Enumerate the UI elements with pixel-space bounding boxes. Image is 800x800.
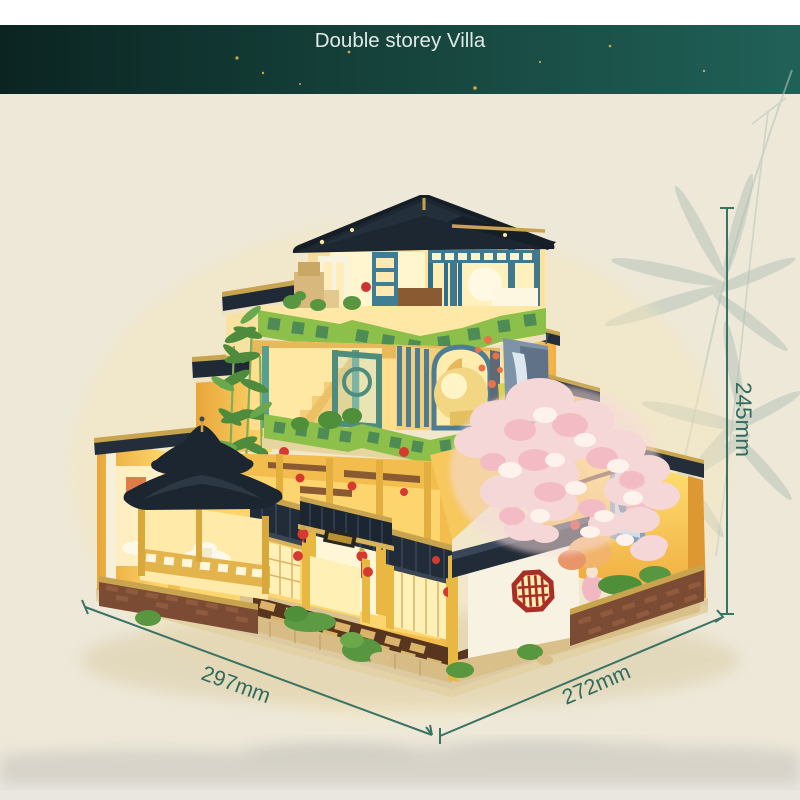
svg-text:245mm: 245mm — [731, 382, 756, 457]
svg-text:Double storey Villa: Double storey Villa — [315, 29, 486, 52]
